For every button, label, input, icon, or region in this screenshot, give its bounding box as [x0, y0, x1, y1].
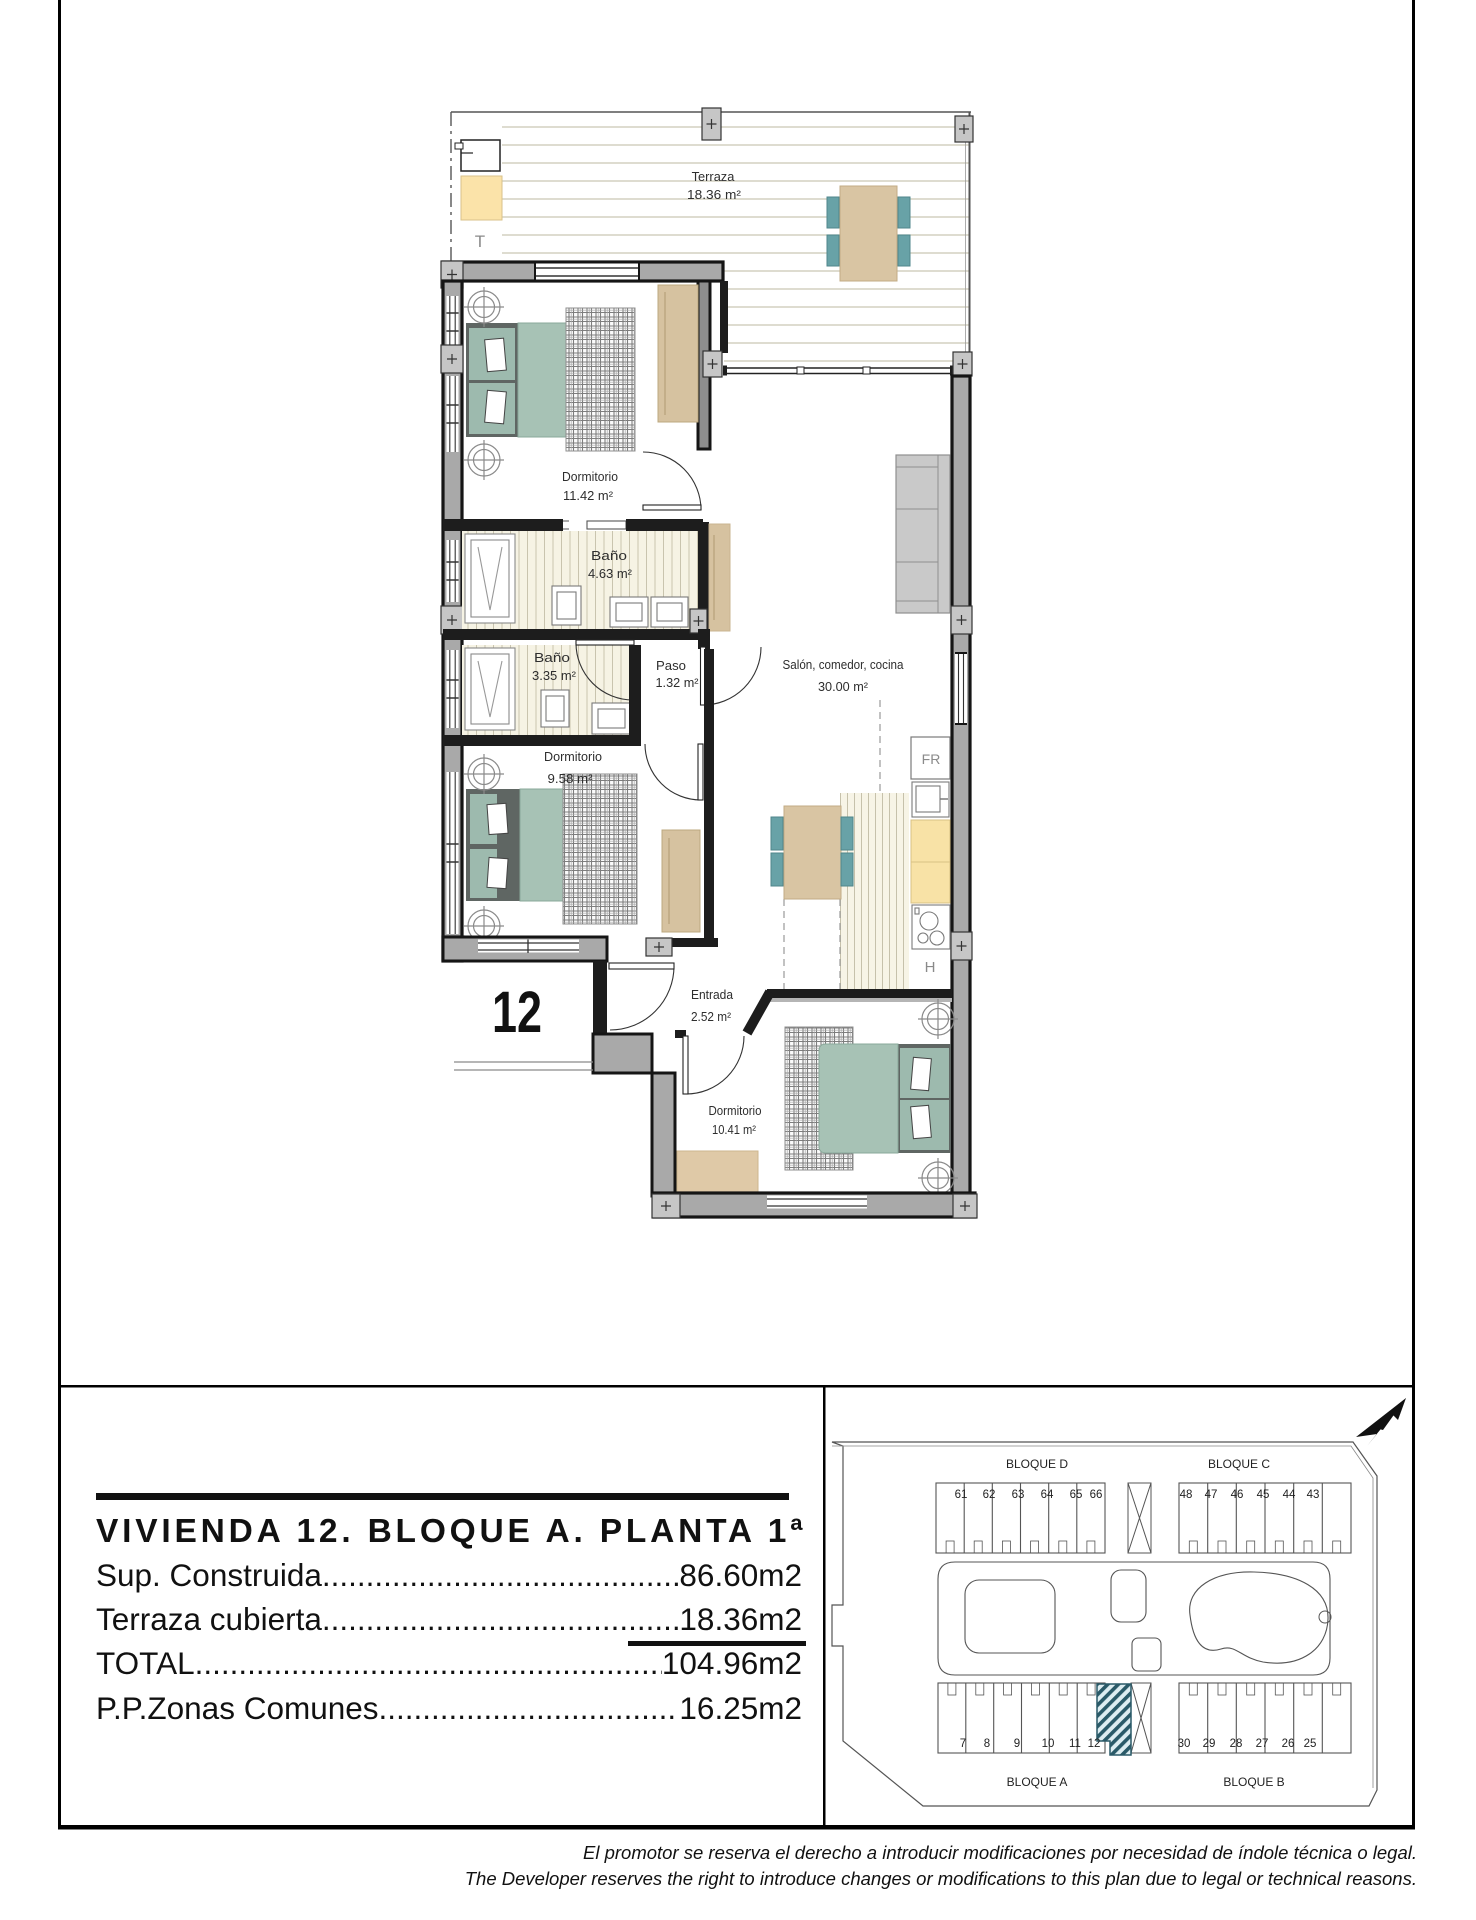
svg-text:62: 62 [983, 1489, 996, 1501]
svg-text:18.36 m²: 18.36 m² [687, 187, 742, 202]
svg-text:BLOQUE D: BLOQUE D [1006, 1457, 1068, 1471]
svg-text:Dormitorio: Dormitorio [544, 749, 602, 764]
svg-text:43: 43 [1307, 1489, 1320, 1501]
svg-text:12: 12 [1088, 1738, 1101, 1750]
svg-text:BLOQUE A: BLOQUE A [1007, 1775, 1068, 1789]
svg-text:H: H [925, 959, 936, 976]
svg-text:64: 64 [1041, 1489, 1054, 1501]
svg-text:45: 45 [1257, 1489, 1270, 1501]
svg-text:30: 30 [1178, 1738, 1191, 1750]
svg-text:28: 28 [1230, 1738, 1243, 1750]
svg-text:30.00 m²: 30.00 m² [818, 679, 869, 694]
svg-text:Entrada: Entrada [691, 987, 734, 1002]
svg-text:9.58 m²: 9.58 m² [548, 771, 594, 786]
svg-text:61: 61 [955, 1489, 968, 1501]
svg-text:Paso: Paso [656, 658, 686, 673]
svg-text:27: 27 [1256, 1738, 1269, 1750]
svg-text:Salón, comedor, cocina: Salón, comedor, cocina [783, 657, 905, 672]
svg-text:66: 66 [1090, 1489, 1103, 1501]
svg-text:2.52 m²: 2.52 m² [691, 1009, 732, 1024]
svg-text:Baño: Baño [534, 650, 570, 665]
svg-text:Terraza: Terraza [692, 169, 736, 184]
svg-text:9: 9 [1014, 1738, 1020, 1750]
svg-text:25: 25 [1304, 1738, 1317, 1750]
svg-text:8: 8 [984, 1738, 990, 1750]
svg-text:11.42 m²: 11.42 m² [563, 488, 614, 503]
svg-text:47: 47 [1205, 1489, 1218, 1501]
svg-text:63: 63 [1012, 1489, 1025, 1501]
svg-text:Baño: Baño [591, 548, 627, 563]
svg-text:7: 7 [960, 1738, 966, 1750]
svg-text:44: 44 [1283, 1489, 1296, 1501]
svg-text:12: 12 [492, 980, 542, 1045]
svg-text:T: T [475, 232, 485, 251]
svg-text:Dormitorio: Dormitorio [562, 469, 618, 484]
svg-text:29: 29 [1203, 1738, 1216, 1750]
svg-text:BLOQUE B: BLOQUE B [1223, 1775, 1284, 1789]
svg-text:3.35 m²: 3.35 m² [532, 668, 577, 683]
svg-text:4.63 m²: 4.63 m² [588, 566, 633, 581]
svg-text:48: 48 [1180, 1489, 1193, 1501]
svg-text:46: 46 [1231, 1489, 1244, 1501]
svg-text:Dormitorio: Dormitorio [709, 1103, 762, 1118]
svg-text:10: 10 [1042, 1738, 1055, 1750]
svg-text:26: 26 [1282, 1738, 1295, 1750]
svg-text:10.41 m²: 10.41 m² [712, 1122, 757, 1137]
svg-text:65: 65 [1070, 1489, 1083, 1501]
svg-text:11: 11 [1069, 1738, 1081, 1750]
svg-text:FR: FR [922, 751, 941, 767]
svg-text:1.32 m²: 1.32 m² [656, 675, 700, 690]
svg-text:BLOQUE C: BLOQUE C [1208, 1457, 1270, 1471]
